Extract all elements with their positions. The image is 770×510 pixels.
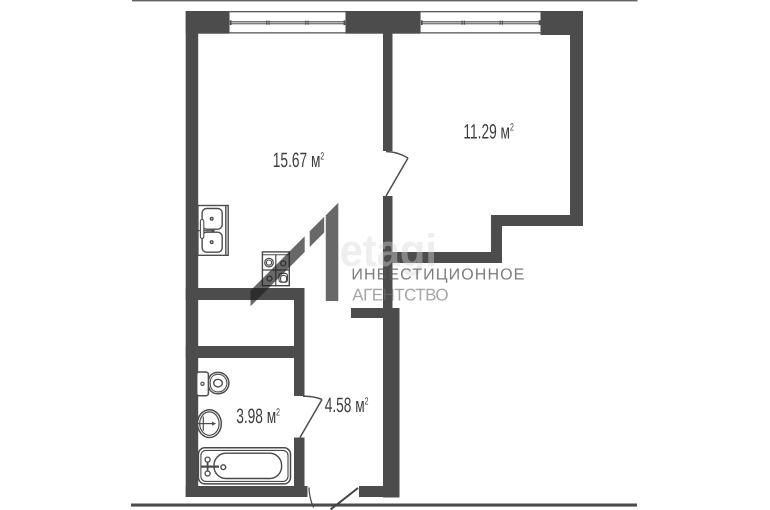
svg-text:АГЕНТСТВО: АГЕНТСТВО	[352, 286, 448, 305]
svg-text:11.29 м2: 11.29 м2	[463, 120, 514, 143]
svg-text:15.67 м2: 15.67 м2	[273, 149, 325, 172]
svg-text:ИНВЕСТИЦИОННОЕ: ИНВЕСТИЦИОННОЕ	[351, 267, 524, 284]
svg-text:4.58 м2: 4.58 м2	[325, 394, 369, 417]
svg-text:3.98 м2: 3.98 м2	[236, 405, 280, 428]
